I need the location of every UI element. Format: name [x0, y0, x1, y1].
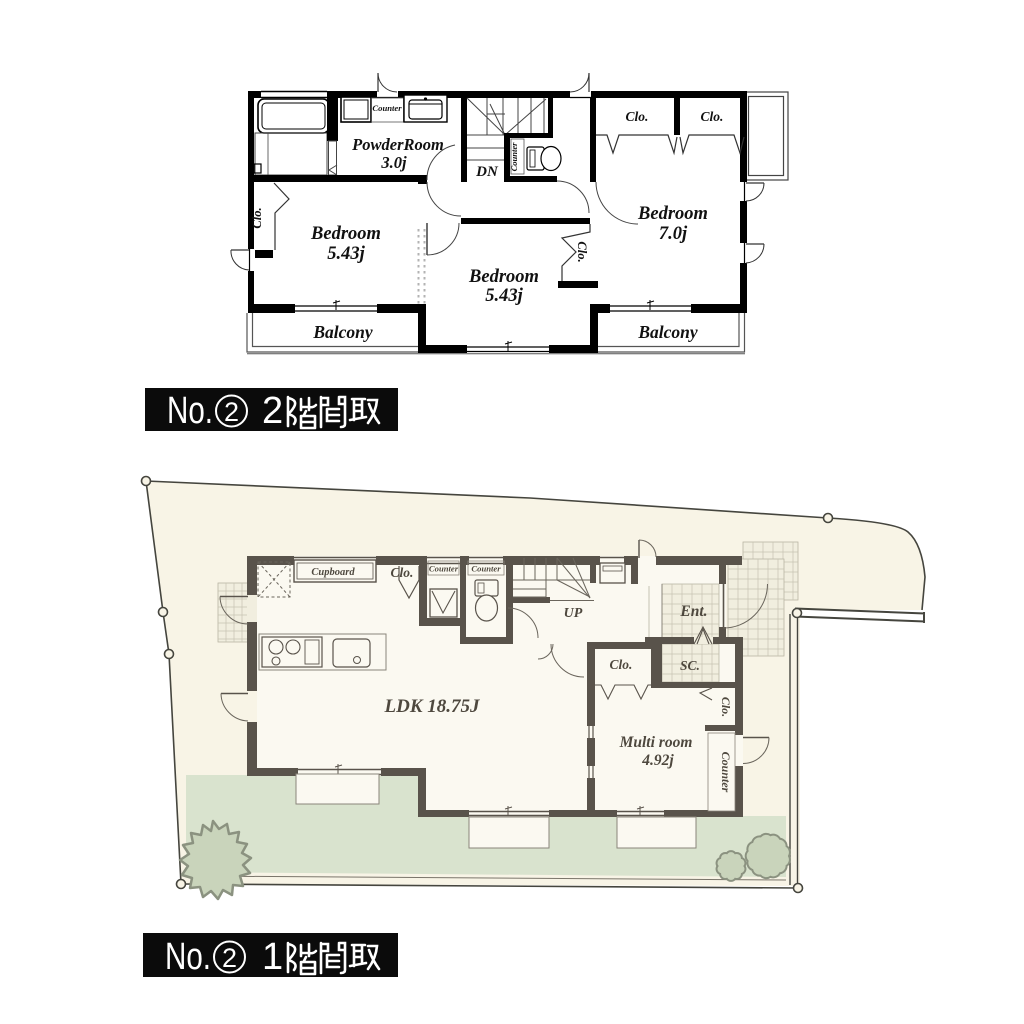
svg-text:DN: DN	[475, 164, 499, 180]
svg-text:Balcony: Balcony	[312, 322, 373, 342]
svg-text:PowderRoom: PowderRoom	[351, 135, 444, 154]
svg-text:Counter: Counter	[471, 564, 501, 574]
svg-text:Counter: Counter	[372, 103, 402, 113]
svg-text:Counter: Counter	[719, 752, 733, 793]
svg-text:Counter: Counter	[509, 142, 519, 172]
svg-text:7.0j: 7.0j	[659, 224, 688, 244]
svg-text:Counter: Counter	[429, 564, 459, 574]
svg-text:Ent.: Ent.	[679, 603, 707, 620]
svg-text:2: 2	[262, 390, 283, 432]
svg-text:UP: UP	[564, 606, 583, 621]
svg-text:SC.: SC.	[680, 658, 700, 673]
svg-text:Clo.: Clo.	[391, 565, 414, 580]
svg-text:2: 2	[224, 397, 239, 427]
svg-text:1: 1	[262, 936, 283, 978]
svg-text:5.43j: 5.43j	[485, 286, 523, 306]
svg-text:Bedroom: Bedroom	[637, 204, 708, 224]
svg-text:Bedroom: Bedroom	[468, 267, 539, 287]
svg-text:No.: No.	[165, 936, 211, 978]
svg-text:LDK 18.75J: LDK 18.75J	[384, 696, 481, 717]
svg-text:Clo.: Clo.	[701, 109, 724, 124]
svg-text:Clo.: Clo.	[719, 697, 733, 717]
svg-text:Clo.: Clo.	[575, 241, 589, 262]
svg-text:Multi room: Multi room	[619, 734, 693, 751]
svg-text:Clo.: Clo.	[610, 657, 633, 672]
svg-text:5.43j: 5.43j	[327, 244, 365, 264]
svg-text:3.0j: 3.0j	[380, 153, 407, 172]
svg-text:No.: No.	[167, 390, 213, 432]
svg-text:Balcony: Balcony	[637, 322, 698, 342]
svg-text:4.92j: 4.92j	[641, 752, 674, 769]
svg-text:Clo.: Clo.	[250, 207, 264, 228]
svg-text:Bedroom: Bedroom	[310, 224, 381, 244]
svg-text:2: 2	[222, 943, 237, 973]
svg-text:Clo.: Clo.	[626, 109, 649, 124]
svg-text:Cupboard: Cupboard	[311, 567, 355, 578]
